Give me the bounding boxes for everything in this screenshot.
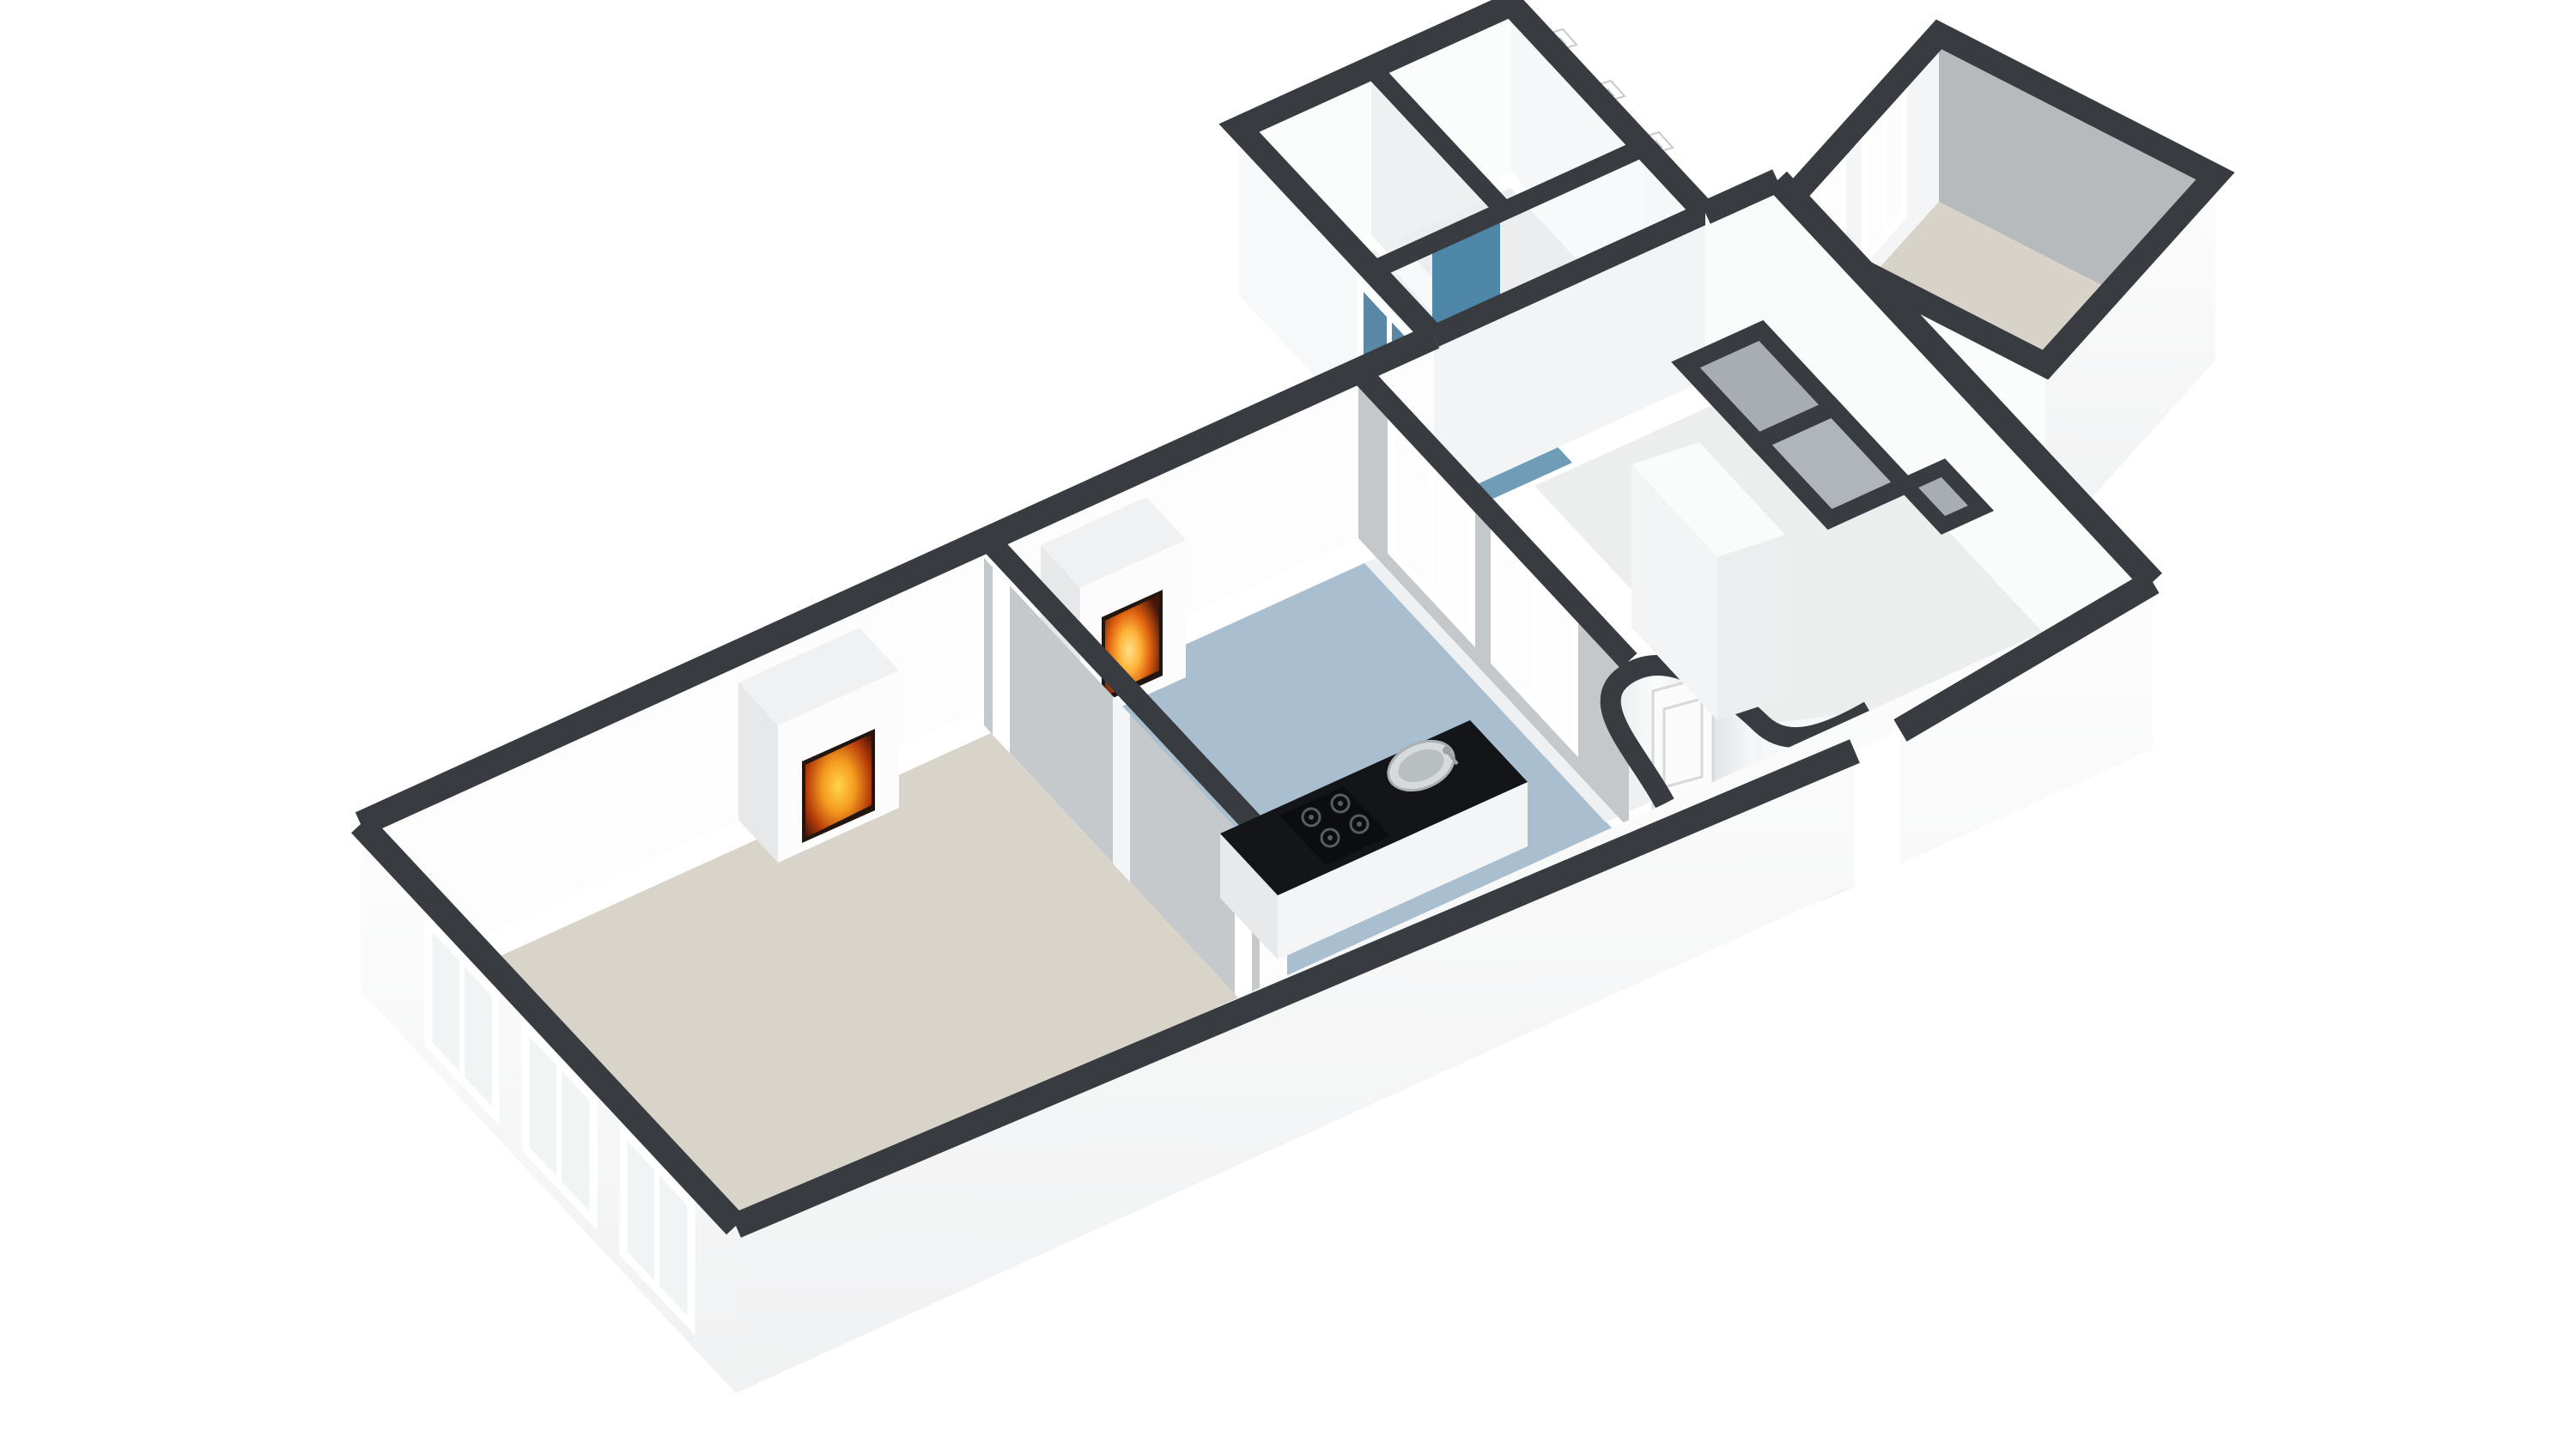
burner-cap xyxy=(1309,815,1314,820)
floorplan-render xyxy=(0,0,2576,1449)
entrance-pier xyxy=(1855,731,1900,919)
burner-cap xyxy=(1327,835,1333,840)
burner-cap xyxy=(1338,801,1343,806)
burner-cap xyxy=(1357,822,1362,827)
wardrobe-side xyxy=(1717,535,1785,720)
main-block xyxy=(361,180,2153,1393)
partition-pilaster xyxy=(1113,696,1130,882)
floorplan-svg xyxy=(0,0,2576,1449)
partition-pilaster xyxy=(993,567,1010,753)
